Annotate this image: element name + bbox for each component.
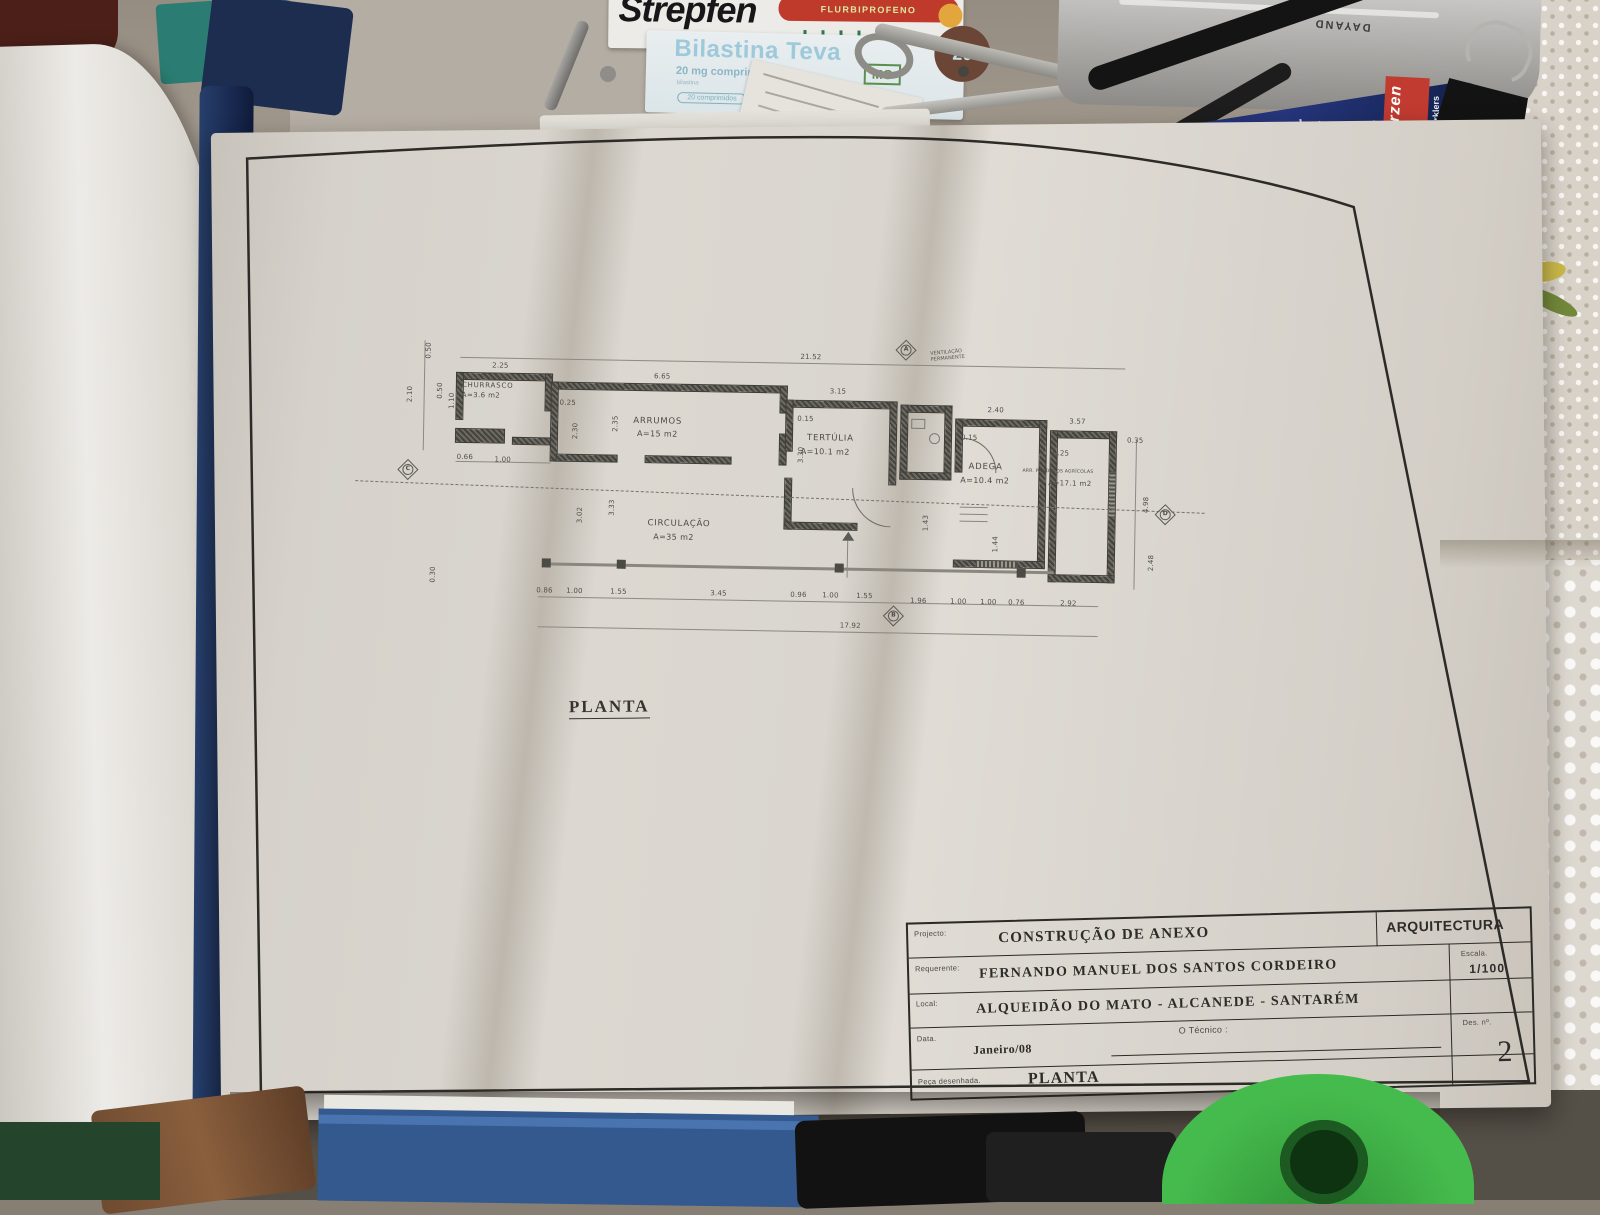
dim: 1.00	[566, 587, 583, 595]
dim: 0.50	[425, 342, 433, 359]
dim: 3.33	[608, 499, 616, 516]
location-label: Local:	[916, 999, 938, 1009]
dim: 0.25	[560, 399, 577, 407]
dim: 2.48	[1147, 555, 1155, 572]
dim: 2.30	[571, 423, 579, 440]
dim: 1.55	[856, 592, 873, 600]
section-marker-d: D	[1155, 504, 1176, 525]
dim: 0.86	[536, 586, 553, 594]
discipline: ARQUITECTURA	[1386, 916, 1504, 935]
piece-label: Peça desenhada.	[918, 1076, 981, 1087]
room-adega: ADEGA	[968, 462, 1002, 473]
number-label: Des. nº.	[1463, 1017, 1492, 1027]
room-arrumos-area: A=15 m2	[637, 429, 678, 439]
plan-caption: PLANTA	[569, 696, 650, 719]
dim: 3.15	[830, 387, 847, 395]
room-tertulia-area: A=10.1 m2	[801, 447, 850, 457]
dim: 3.45	[710, 589, 727, 597]
room-tertulia: TERTÚLIA	[807, 433, 854, 444]
scale-label: Escala.	[1461, 948, 1488, 958]
bilastina-count-pill: 20 comprimidos	[677, 92, 747, 105]
room-circulacao: CIRCULAÇÃO	[647, 518, 710, 529]
number-value: 2	[1497, 1035, 1514, 1069]
dim: 2.10	[406, 386, 414, 403]
room-adega-area: A=10.4 m2	[960, 476, 1009, 486]
strepfen-brand: Strepfen	[618, 0, 756, 32]
dim: 0.35	[1127, 437, 1144, 445]
dim: 1.00	[495, 456, 512, 464]
dim: 1.00	[950, 597, 967, 605]
drawing-sheet: A B C D VENTILAÇÃOPERMANENTE CHURRASCO A…	[211, 119, 1551, 1121]
dim: 1.96	[910, 597, 927, 605]
photo-of-floor-plan: { "scene": { "strepfen": { "brand": "Str…	[0, 0, 1600, 1200]
dim: 1.00	[980, 598, 997, 606]
scale-value: 1/100	[1469, 961, 1505, 976]
bilastina-substance: bilastina	[677, 80, 699, 87]
dim: 4.98	[1142, 497, 1150, 514]
dim: 0.15	[961, 434, 978, 442]
room-arrprod-area: A=17.1 m2	[1048, 479, 1091, 488]
dim: 1.00	[822, 591, 839, 599]
blue-folder	[317, 1109, 818, 1208]
black-object-bottom	[986, 1132, 1176, 1202]
dim: 2.25	[492, 361, 509, 369]
client-label: Requerente:	[915, 963, 960, 973]
section-marker-a: A	[895, 340, 916, 361]
date-value: Janeiro/08	[973, 1041, 1032, 1058]
room-churrasco-area: A=3.6 m2	[462, 391, 501, 400]
dark-green-cloth	[0, 1122, 160, 1200]
dim: 17.92	[840, 622, 861, 630]
dim: 1.55	[610, 588, 627, 596]
dim: 0.76	[1008, 598, 1025, 606]
scissors-screw	[958, 66, 969, 77]
dim: 0.50	[436, 382, 444, 399]
floor-plan: A B C D VENTILAÇÃOPERMANENTE CHURRASCO A…	[397, 332, 1203, 681]
tool-brand-mirrored: DAYAND	[1313, 17, 1371, 33]
title-block: Projecto: CONSTRUÇÃO DE ANEXO ARQUITECTU…	[906, 906, 1536, 1100]
dim: 0.96	[790, 591, 807, 599]
dim: 0.15	[797, 415, 814, 423]
dim: 2.40	[987, 406, 1004, 414]
piece-value: PLANTA	[1028, 1069, 1100, 1089]
room-churrasco: CHURRASCO	[462, 381, 514, 390]
section-marker-b: B	[883, 605, 904, 626]
dim: 3.30	[797, 447, 805, 464]
dim: 3.57	[1069, 418, 1086, 426]
dim: 1.10	[448, 392, 456, 409]
dim: 1.44	[991, 536, 999, 553]
room-arrprod: ARR. PRODUTOS AGRÍCOLAS	[1022, 469, 1093, 475]
dim: 2.35	[611, 415, 619, 432]
section-marker-c: C	[397, 459, 418, 480]
dim: 1.43	[922, 515, 930, 532]
dim: 3.02	[576, 507, 584, 524]
technician-label: O Técnico :	[1179, 1024, 1228, 1035]
dim: 21.52	[800, 353, 821, 361]
cloth-fold-shadow	[1440, 540, 1600, 568]
room-arrumos: ARRUMOS	[633, 416, 682, 427]
dim: 6.65	[654, 372, 671, 380]
dim: 0.25	[1053, 449, 1070, 457]
dim: 2.92	[1060, 599, 1077, 607]
room-circulacao-area: A=35 m2	[653, 532, 694, 542]
dim: 0.66	[457, 453, 474, 461]
ventilation-note: VENTILAÇÃOPERMANENTE	[930, 348, 965, 363]
green-lid-hole	[1280, 1120, 1368, 1204]
project-label: Projecto:	[914, 929, 947, 939]
date-label: Data.	[917, 1034, 937, 1044]
dim: 0.30	[429, 566, 437, 583]
